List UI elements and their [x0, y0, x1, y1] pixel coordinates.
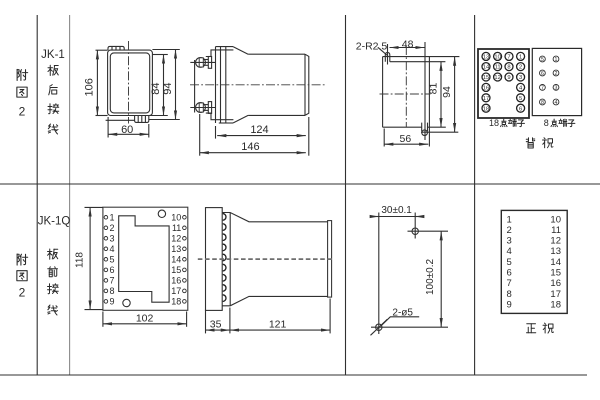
- svg-text:16: 16: [171, 276, 181, 286]
- svg-text:16: 16: [483, 86, 489, 92]
- svg-text:5: 5: [507, 257, 512, 268]
- svg-text:15: 15: [171, 265, 181, 275]
- svg-text:15: 15: [550, 268, 561, 279]
- svg-text:11: 11: [495, 65, 501, 71]
- svg-text:5: 5: [110, 255, 115, 265]
- svg-text:4: 4: [507, 246, 512, 257]
- svg-text:7: 7: [110, 276, 115, 286]
- svg-text:11: 11: [551, 225, 561, 236]
- svg-text:17: 17: [550, 289, 561, 300]
- svg-text:13: 13: [171, 244, 181, 254]
- svg-text:13: 13: [483, 55, 489, 61]
- svg-text:6: 6: [110, 265, 115, 275]
- svg-text:8: 8: [544, 118, 549, 128]
- svg-text:6: 6: [541, 71, 544, 77]
- svg-text:94: 94: [162, 82, 174, 94]
- svg-text:3: 3: [519, 75, 522, 81]
- svg-text:4: 4: [110, 244, 115, 254]
- svg-text:8: 8: [507, 289, 512, 300]
- svg-text:JK-1: JK-1: [41, 49, 65, 61]
- svg-text:9: 9: [507, 75, 510, 81]
- svg-text:2: 2: [110, 223, 115, 233]
- svg-text:10: 10: [171, 213, 181, 223]
- svg-text:12: 12: [550, 236, 561, 247]
- svg-text:9: 9: [507, 299, 512, 310]
- svg-text:81: 81: [428, 83, 440, 95]
- svg-text:1: 1: [110, 213, 115, 223]
- svg-text:48: 48: [402, 38, 414, 50]
- svg-text:9: 9: [110, 297, 115, 307]
- svg-text:14: 14: [483, 65, 490, 71]
- svg-text:5: 5: [519, 96, 522, 102]
- svg-text:2: 2: [19, 286, 26, 300]
- svg-text:12: 12: [494, 75, 500, 81]
- svg-text:5: 5: [541, 57, 544, 63]
- svg-text:56: 56: [400, 133, 412, 145]
- svg-text:146: 146: [241, 141, 259, 153]
- svg-text:16: 16: [550, 278, 561, 289]
- svg-text:10: 10: [550, 214, 561, 225]
- svg-text:8: 8: [541, 100, 544, 106]
- svg-text:8: 8: [507, 65, 510, 71]
- svg-text:2: 2: [555, 71, 558, 77]
- svg-text:10: 10: [494, 55, 500, 61]
- svg-text:2: 2: [507, 225, 512, 236]
- svg-text:102: 102: [136, 312, 154, 324]
- svg-text:JK-1Q: JK-1Q: [38, 215, 71, 227]
- svg-text:3: 3: [555, 85, 558, 91]
- svg-text:1: 1: [519, 55, 522, 61]
- svg-text:35: 35: [210, 319, 222, 331]
- svg-text:3: 3: [110, 234, 115, 244]
- svg-text:60: 60: [121, 124, 133, 136]
- svg-text:94: 94: [441, 86, 453, 98]
- svg-text:13: 13: [550, 246, 561, 257]
- svg-text:7: 7: [507, 278, 512, 289]
- svg-text:14: 14: [171, 255, 181, 265]
- svg-text:1: 1: [507, 214, 512, 225]
- svg-text:100±0.2: 100±0.2: [425, 259, 436, 296]
- svg-text:124: 124: [250, 124, 268, 136]
- svg-text:7: 7: [541, 85, 544, 91]
- svg-text:6: 6: [519, 106, 522, 112]
- svg-text:17: 17: [483, 96, 489, 102]
- svg-text:7: 7: [507, 55, 510, 61]
- svg-text:14: 14: [550, 257, 561, 268]
- svg-text:121: 121: [269, 319, 287, 331]
- svg-text:18: 18: [171, 297, 181, 307]
- svg-text:8: 8: [110, 286, 115, 296]
- svg-text:18: 18: [483, 106, 489, 112]
- svg-text:1: 1: [555, 57, 558, 63]
- svg-text:2: 2: [519, 65, 522, 71]
- svg-text:15: 15: [483, 75, 489, 81]
- svg-text:106: 106: [84, 78, 96, 96]
- svg-text:17: 17: [171, 286, 181, 296]
- svg-text:3: 3: [507, 236, 512, 247]
- svg-text:18: 18: [550, 299, 561, 310]
- svg-text:2: 2: [19, 105, 26, 119]
- svg-text:4: 4: [555, 100, 558, 106]
- svg-text:11: 11: [172, 223, 181, 233]
- svg-text:118: 118: [75, 252, 86, 268]
- svg-text:2-R2.5: 2-R2.5: [356, 40, 388, 52]
- svg-text:18: 18: [489, 118, 499, 128]
- svg-text:6: 6: [507, 268, 512, 279]
- svg-text:84: 84: [150, 82, 162, 94]
- svg-text:30±0.1: 30±0.1: [381, 205, 412, 216]
- svg-text:12: 12: [171, 234, 181, 244]
